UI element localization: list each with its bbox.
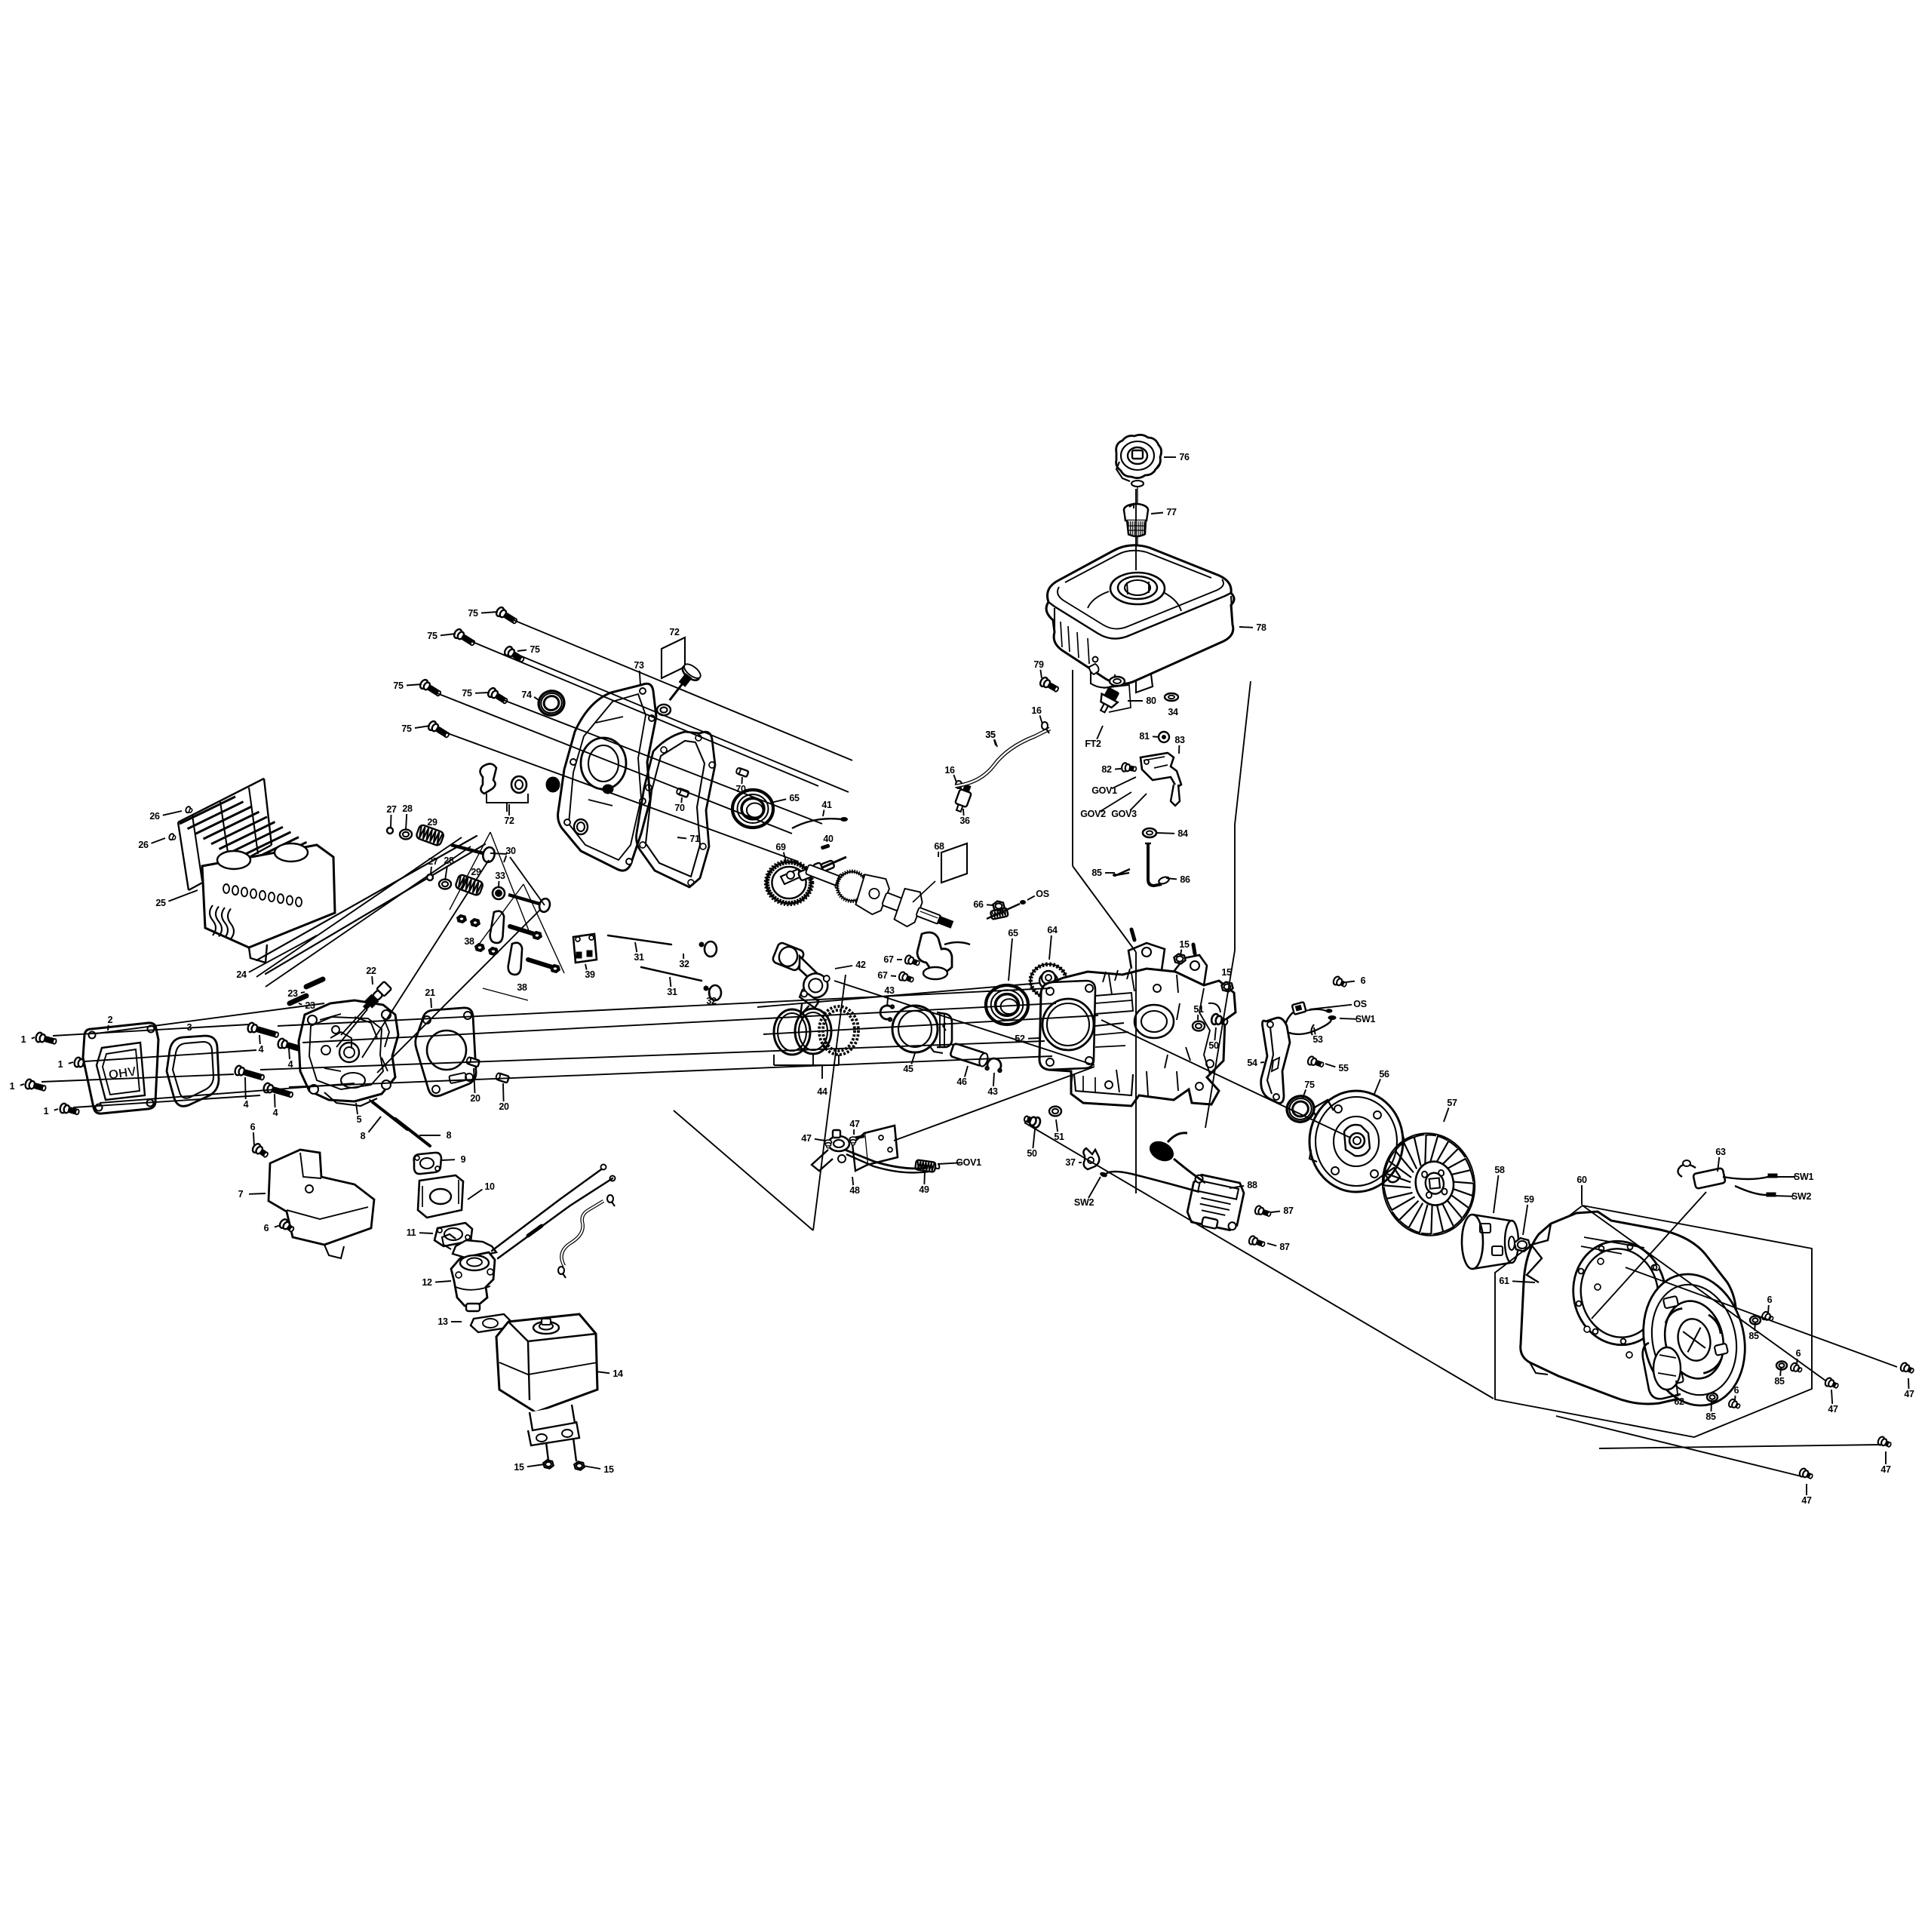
svg-text:11: 11: [407, 1227, 416, 1238]
svg-text:26: 26: [149, 811, 160, 822]
svg-text:55: 55: [1338, 1063, 1349, 1074]
svg-text:59: 59: [1524, 1194, 1534, 1205]
svg-text:SW2: SW2: [1074, 1197, 1094, 1208]
svg-text:68: 68: [934, 841, 944, 852]
svg-text:38: 38: [517, 982, 527, 993]
svg-text:58: 58: [1494, 1165, 1505, 1175]
svg-text:78: 78: [1256, 622, 1266, 633]
svg-text:88: 88: [1247, 1180, 1257, 1190]
svg-text:47: 47: [1880, 1464, 1891, 1475]
svg-text:28: 28: [444, 855, 454, 866]
svg-text:87: 87: [1283, 1206, 1294, 1216]
svg-text:53: 53: [1312, 1034, 1323, 1045]
svg-text:6: 6: [1361, 975, 1366, 986]
svg-text:8: 8: [361, 1131, 366, 1141]
svg-text:23: 23: [287, 988, 298, 999]
svg-text:50: 50: [1027, 1148, 1037, 1159]
svg-text:64: 64: [1047, 925, 1058, 935]
svg-text:16: 16: [1031, 705, 1042, 716]
svg-text:72: 72: [669, 627, 680, 637]
svg-text:14: 14: [612, 1368, 623, 1379]
svg-text:57: 57: [1447, 1098, 1457, 1108]
svg-text:FT2: FT2: [1085, 739, 1101, 749]
svg-text:3: 3: [187, 1022, 192, 1033]
svg-text:77: 77: [1166, 507, 1177, 518]
svg-text:47: 47: [801, 1133, 812, 1144]
svg-text:87: 87: [1279, 1242, 1290, 1252]
svg-text:47: 47: [849, 1119, 860, 1129]
svg-text:32: 32: [706, 996, 717, 1006]
svg-text:22: 22: [366, 966, 376, 976]
svg-text:79: 79: [1033, 659, 1044, 670]
svg-text:47: 47: [1828, 1404, 1838, 1414]
svg-text:69: 69: [775, 842, 786, 852]
svg-text:15: 15: [514, 1462, 524, 1473]
svg-text:72: 72: [504, 815, 514, 826]
svg-text:1: 1: [58, 1059, 63, 1070]
svg-text:85: 85: [1748, 1331, 1759, 1341]
svg-text:42: 42: [855, 960, 866, 970]
svg-text:13: 13: [437, 1316, 448, 1327]
svg-text:85: 85: [1705, 1411, 1716, 1422]
svg-text:85: 85: [1774, 1376, 1785, 1387]
svg-text:24: 24: [236, 969, 247, 980]
svg-text:73: 73: [634, 660, 644, 671]
svg-text:8: 8: [447, 1130, 452, 1141]
svg-text:47: 47: [1904, 1389, 1914, 1399]
svg-text:62: 62: [1674, 1396, 1684, 1407]
svg-text:51: 51: [1054, 1132, 1064, 1142]
svg-text:5: 5: [357, 1114, 362, 1125]
svg-text:20: 20: [499, 1101, 509, 1112]
svg-text:45: 45: [903, 1064, 913, 1074]
svg-text:9: 9: [461, 1154, 466, 1165]
svg-text:81: 81: [1139, 731, 1150, 742]
svg-text:GOV1: GOV1: [1091, 785, 1117, 796]
svg-text:SW1: SW1: [1794, 1172, 1814, 1182]
svg-text:4: 4: [288, 1059, 293, 1070]
svg-text:1: 1: [10, 1081, 15, 1092]
svg-text:38: 38: [464, 936, 474, 947]
svg-text:75: 75: [462, 688, 472, 699]
svg-text:1: 1: [21, 1034, 26, 1045]
svg-text:29: 29: [471, 867, 481, 877]
svg-text:48: 48: [849, 1185, 860, 1196]
svg-text:12: 12: [422, 1277, 432, 1288]
svg-text:46: 46: [956, 1077, 967, 1087]
svg-text:6: 6: [1767, 1295, 1773, 1305]
svg-text:43: 43: [987, 1086, 998, 1097]
svg-text:23: 23: [305, 1000, 315, 1011]
svg-text:27: 27: [386, 804, 397, 815]
svg-text:31: 31: [634, 952, 644, 963]
svg-text:75: 75: [427, 631, 437, 641]
svg-text:56: 56: [1379, 1069, 1389, 1080]
svg-text:36: 36: [959, 815, 970, 826]
svg-text:34: 34: [1168, 707, 1178, 717]
svg-text:7: 7: [238, 1189, 244, 1199]
svg-text:1: 1: [44, 1106, 49, 1117]
svg-text:83: 83: [1174, 735, 1185, 745]
svg-text:66: 66: [973, 899, 984, 910]
svg-text:OS: OS: [1353, 999, 1366, 1009]
svg-text:67: 67: [877, 970, 888, 981]
svg-text:4: 4: [273, 1107, 278, 1118]
svg-text:OS: OS: [1036, 889, 1048, 899]
svg-text:85: 85: [1091, 868, 1102, 878]
svg-text:61: 61: [1499, 1276, 1509, 1286]
svg-text:37: 37: [1065, 1157, 1076, 1168]
svg-text:71: 71: [689, 834, 700, 844]
svg-text:21: 21: [425, 988, 435, 998]
svg-text:SW1: SW1: [1355, 1014, 1376, 1024]
svg-text:54: 54: [1247, 1058, 1257, 1068]
svg-text:40: 40: [823, 834, 834, 844]
svg-text:80: 80: [1146, 696, 1156, 706]
svg-text:82: 82: [1101, 764, 1112, 775]
svg-text:75: 75: [393, 680, 404, 691]
svg-text:74: 74: [521, 690, 532, 700]
svg-text:31: 31: [667, 987, 677, 997]
svg-text:SW2: SW2: [1791, 1191, 1812, 1202]
svg-text:GOV3: GOV3: [1111, 809, 1137, 819]
svg-text:67: 67: [883, 954, 894, 965]
svg-text:70: 70: [674, 803, 685, 813]
svg-text:27: 27: [428, 856, 438, 867]
svg-text:43: 43: [884, 985, 895, 996]
svg-text:41: 41: [821, 800, 832, 810]
svg-text:25: 25: [155, 898, 166, 908]
svg-text:44: 44: [817, 1086, 827, 1097]
svg-text:86: 86: [1180, 874, 1190, 885]
svg-text:26: 26: [138, 840, 149, 850]
svg-text:6: 6: [1734, 1385, 1739, 1396]
svg-text:32: 32: [679, 959, 689, 969]
svg-text:35: 35: [985, 729, 996, 740]
svg-text:75: 75: [401, 723, 412, 734]
svg-text:75: 75: [468, 608, 478, 619]
svg-text:30: 30: [505, 846, 516, 856]
svg-text:75: 75: [530, 644, 540, 655]
svg-text:28: 28: [402, 803, 413, 814]
svg-text:2: 2: [108, 1015, 113, 1025]
svg-text:70: 70: [735, 784, 746, 794]
svg-text:49: 49: [919, 1184, 929, 1195]
svg-text:6: 6: [264, 1223, 269, 1233]
svg-text:51: 51: [1193, 1004, 1204, 1015]
svg-text:6: 6: [250, 1122, 256, 1132]
svg-text:60: 60: [1576, 1175, 1587, 1185]
svg-text:6: 6: [1796, 1348, 1801, 1359]
svg-text:10: 10: [484, 1181, 495, 1192]
svg-text:15: 15: [603, 1464, 614, 1475]
svg-text:15: 15: [1179, 939, 1190, 950]
svg-text:4: 4: [259, 1044, 264, 1055]
svg-text:84: 84: [1177, 828, 1188, 839]
svg-text:39: 39: [585, 969, 595, 980]
svg-text:4: 4: [244, 1099, 249, 1110]
svg-text:63: 63: [1715, 1147, 1726, 1157]
svg-text:75: 75: [1304, 1080, 1315, 1090]
svg-text:33: 33: [495, 871, 505, 881]
svg-text:29: 29: [427, 817, 437, 828]
svg-text:76: 76: [1179, 452, 1190, 462]
svg-text:50: 50: [1208, 1040, 1219, 1051]
svg-text:52: 52: [1015, 1034, 1025, 1044]
svg-text:15: 15: [1221, 967, 1232, 978]
svg-text:65: 65: [789, 793, 800, 803]
svg-text:47: 47: [1801, 1495, 1812, 1506]
svg-text:16: 16: [944, 765, 955, 776]
svg-text:65: 65: [1008, 928, 1018, 938]
svg-text:20: 20: [470, 1093, 480, 1104]
